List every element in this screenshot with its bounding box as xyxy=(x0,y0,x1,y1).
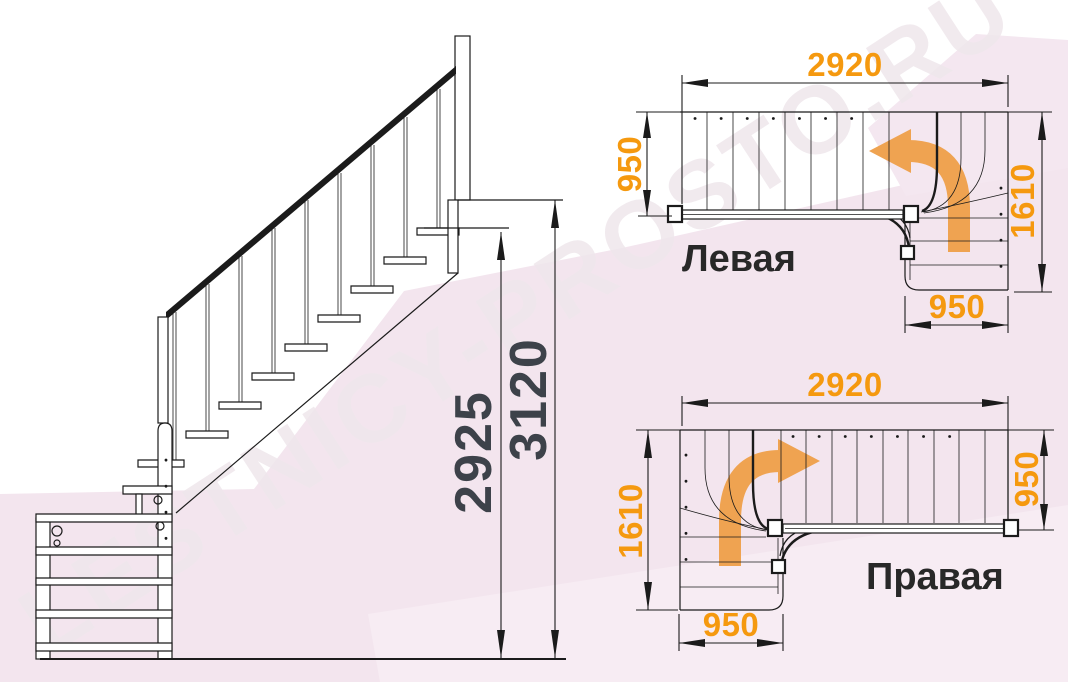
stringer-end-cap xyxy=(668,206,682,222)
lower-newel-post xyxy=(772,560,785,573)
plan-right-label: Правая xyxy=(866,556,1004,598)
dimension-label: 3120 xyxy=(500,337,558,461)
dimension-label: 1610 xyxy=(1004,163,1041,238)
dimension-label: 2925 xyxy=(445,390,503,514)
stringer-end-cap xyxy=(1004,520,1018,536)
handrail xyxy=(166,66,456,320)
dimension-label: 950 xyxy=(929,288,986,325)
lower-left-post xyxy=(36,518,50,659)
dimension-label: 950 xyxy=(1008,451,1045,508)
dimension-label: 2920 xyxy=(807,366,882,403)
dimension-label: 2920 xyxy=(807,46,882,83)
rail-end-post xyxy=(158,317,168,423)
corner-newel-post xyxy=(768,520,782,536)
top-newel-post xyxy=(455,36,470,200)
arrowhead xyxy=(682,79,708,87)
center-newel-post xyxy=(158,423,172,659)
drawing-svg: LESTNICY-PROSTO.RU xyxy=(0,0,1068,682)
dimension-label: 950 xyxy=(611,136,648,193)
staircase-drawing: LESTNICY-PROSTO.RU xyxy=(0,0,1068,682)
arrowhead-up xyxy=(497,232,505,260)
dimension-label: 1610 xyxy=(612,483,649,558)
plan-left-label: Левая xyxy=(682,238,796,280)
arrowhead xyxy=(643,112,651,138)
landing-fascia xyxy=(448,200,458,273)
arrowhead-up xyxy=(551,200,559,228)
lower-newel-post xyxy=(901,246,914,259)
dimension-label: 950 xyxy=(703,606,760,643)
lower-handrail xyxy=(123,486,172,494)
corner-newel-post xyxy=(904,206,918,222)
